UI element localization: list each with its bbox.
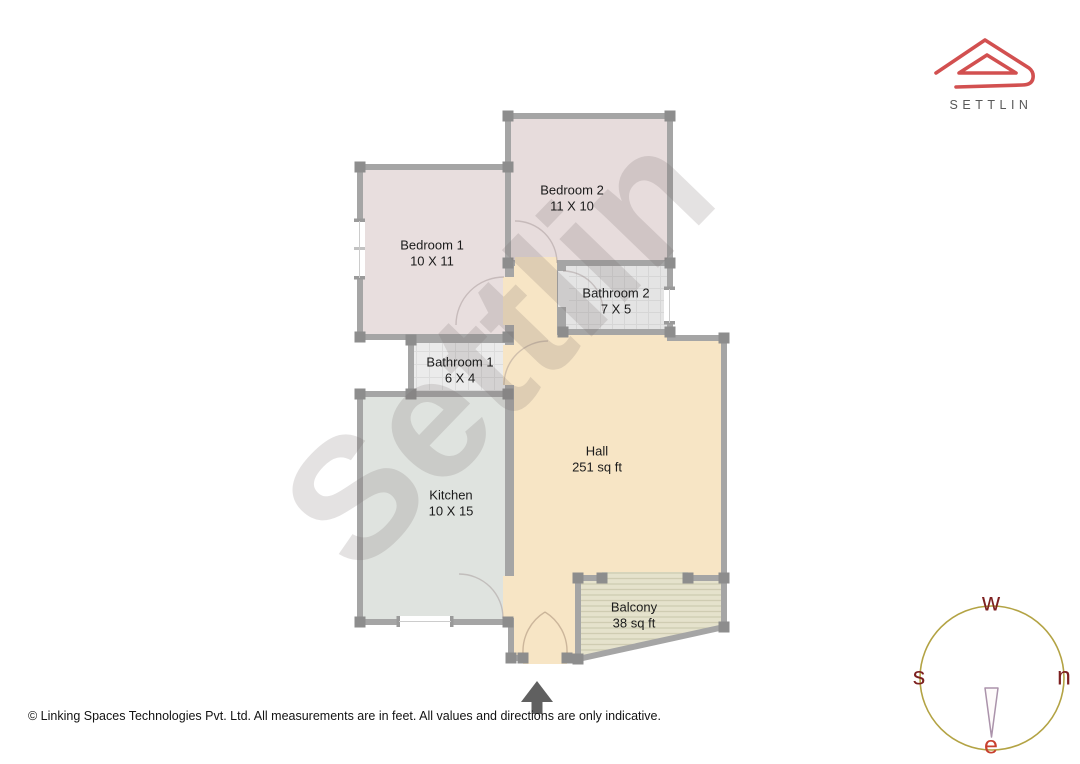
room-name: Bedroom 2	[540, 183, 604, 198]
room-label-hall: Hall 251 sq ft	[572, 444, 622, 475]
room-dims: 6 X 4	[426, 370, 493, 386]
room-name: Kitchen	[429, 488, 472, 503]
room-name: Hall	[586, 444, 608, 459]
room-label-bathroom2: Bathroom 2 7 X 5	[582, 286, 649, 317]
floorplan-page: Settlin Bedroom 1 10 X 11 Bedroom 2 11 X…	[0, 0, 1080, 764]
room-label-bathroom1: Bathroom 1 6 X 4	[426, 355, 493, 386]
room-dims: 10 X 11	[400, 253, 464, 269]
room-label-bedroom1: Bedroom 1 10 X 11	[400, 238, 464, 269]
room-label-bedroom2: Bedroom 2 11 X 10	[540, 183, 604, 214]
room-label-balcony: Balcony 38 sq ft	[611, 600, 657, 631]
room-dims: 11 X 10	[540, 198, 604, 214]
compass-letter-south: s	[913, 663, 926, 692]
room-dims: 10 X 15	[429, 503, 474, 519]
floorplan-drawing: Settlin	[0, 0, 1080, 764]
room-name: Bathroom 2	[582, 286, 649, 301]
compass-letter-east: e	[984, 732, 998, 761]
room-label-kitchen: Kitchen 10 X 15	[429, 488, 474, 519]
room-dims: 7 X 5	[582, 301, 649, 317]
room-dims: 38 sq ft	[611, 615, 657, 631]
compass-letter-north: n	[1057, 663, 1071, 692]
compass-needle-icon	[985, 688, 998, 737]
room-name: Bathroom 1	[426, 355, 493, 370]
copyright-note: © Linking Spaces Technologies Pvt. Ltd. …	[28, 709, 661, 723]
room-dims: 251 sq ft	[572, 459, 622, 475]
compass-rose	[920, 606, 1064, 750]
settlin-wordmark: SETTLIN	[950, 98, 1033, 112]
compass-letter-west: w	[982, 589, 1000, 618]
room-name: Balcony	[611, 600, 657, 615]
room-name: Bedroom 1	[400, 238, 464, 253]
settlin-logo-icon	[936, 40, 1033, 87]
